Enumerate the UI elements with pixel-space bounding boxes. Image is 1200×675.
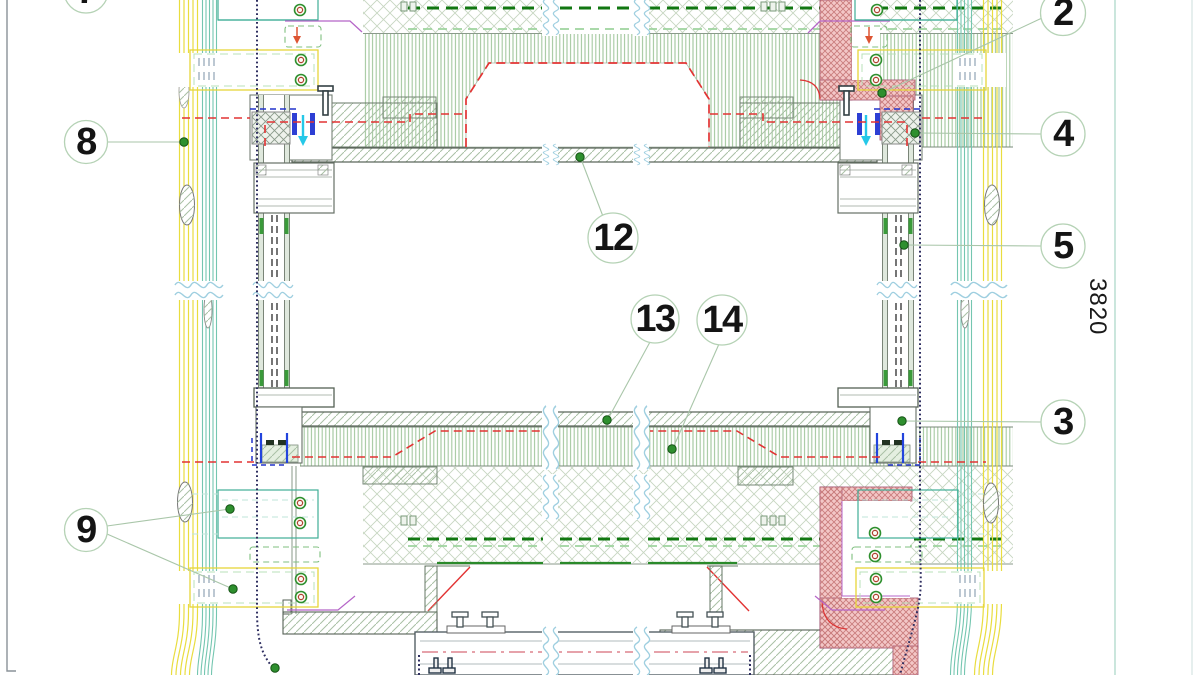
callout-12: 12 [588,213,638,263]
steel-beam [415,612,754,675]
callout-label: 14 [702,299,743,341]
callout-label: 13 [635,298,675,340]
facade-section-drawing: 7 8 9 2 4 5 3 12 13 14 3820 [0,0,1200,675]
callout-label: 8 [76,121,96,163]
callout-13: 13 [631,295,679,343]
callout-label: 2 [1053,0,1073,34]
cad-drawing-svg: 7 8 9 2 4 5 3 12 13 14 3820 [0,0,1200,675]
callout-14: 14 [697,295,747,345]
callout-7: 7 [64,0,108,13]
callout-label: 3 [1053,401,1073,443]
callout-9: 9 [65,509,108,552]
callout-2: 2 [1041,0,1086,36]
callout-4: 4 [1041,112,1085,156]
firestop-bottom-right [815,487,918,675]
callout-5: 5 [1041,224,1085,268]
callout-8: 8 [65,121,108,164]
head-transom-right [838,163,918,213]
callout-label: 12 [593,217,633,259]
leader-dot [271,664,279,672]
callout-label: 5 [1053,225,1074,267]
head-transom-left [254,163,334,213]
dimension-3820: 3820 [1084,278,1111,335]
callout-label: 4 [1053,113,1074,155]
callout-label: 9 [76,509,96,551]
callout-label: 7 [76,0,96,12]
callout-3: 3 [1041,400,1085,444]
